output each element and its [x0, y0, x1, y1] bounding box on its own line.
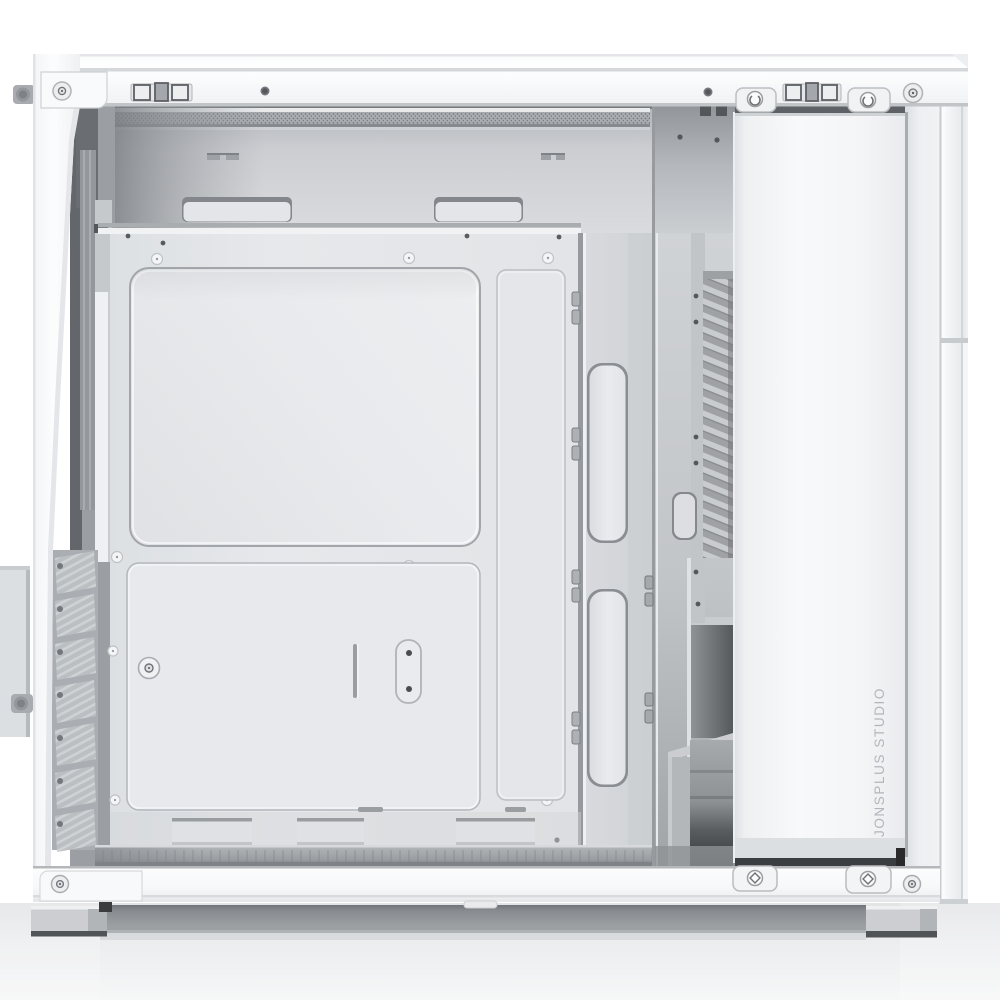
- svg-text:JONSPLUS STUDIO: JONSPLUS STUDIO: [872, 687, 887, 837]
